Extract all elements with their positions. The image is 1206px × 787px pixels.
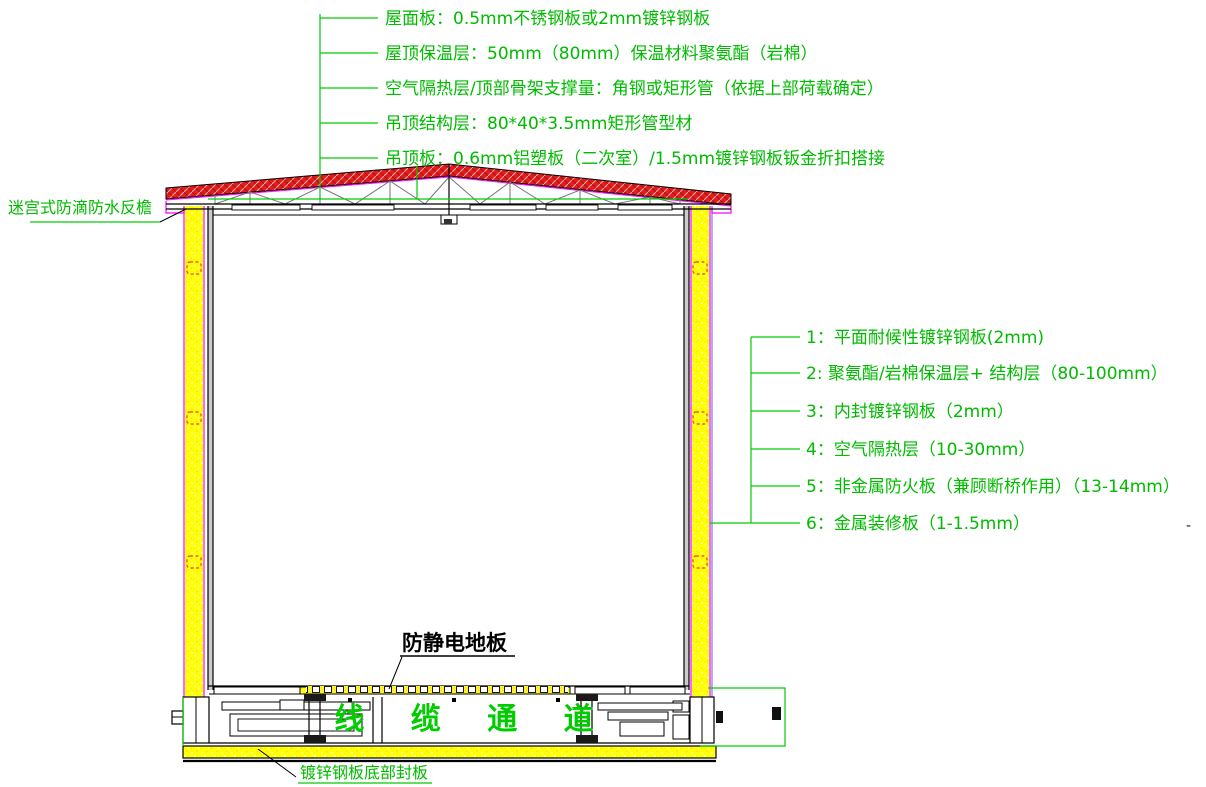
duct-plate-right (608, 712, 668, 720)
wall-annotation-1: 1：平面耐候性镀锌钢板(2mm) (806, 328, 1044, 348)
right-wall-insulation-panel (692, 206, 709, 705)
ceiling-panel (470, 205, 536, 210)
post-cap (304, 694, 326, 701)
wall-annotation-3: 3：内封镀锌钢板（2mm） (806, 402, 1014, 422)
wall-annotation-6: 6：金属装修板（1-1.5mm） (806, 514, 1030, 534)
ceiling-panel (312, 205, 394, 210)
bottom-sealing-slab (183, 746, 716, 758)
antistatic-floor-label: 防静电地板 (402, 631, 508, 655)
ceiling-panel (618, 205, 672, 210)
cad-section-drawing: 屋面板：0.5mm不锈钢板或2mm镀锌钢板 屋顶保温层：50mm（80mm）保温… (0, 0, 1206, 787)
ceiling-center-hanger-pad (444, 219, 452, 224)
wall-fastener-markers (187, 262, 707, 568)
left-wall-insulation-panel (185, 206, 203, 705)
roof-annotation-4: 吊顶结构层：80*40*3.5mm矩形管型材 (385, 114, 692, 134)
extent-box-mark (772, 707, 781, 720)
wall-annotation-bracket (710, 337, 800, 523)
roof-annotation-2: 屋顶保温层：50mm（80mm）保温材料聚氨酯（岩棉） (385, 44, 818, 64)
roof-annotation-1: 屋面板：0.5mm不锈钢板或2mm镀锌钢板 (385, 9, 710, 29)
cable-channel-label: 线 缆 通 道 (334, 702, 611, 737)
wall-annotation-4: 4：空气隔热层（10-30mm） (806, 440, 1035, 460)
roof-annotation-3: 空气隔热层/顶部骨架支撑量：角钢或矩形管（依据上部荷载确定） (385, 79, 884, 99)
post-cap (304, 735, 326, 743)
wall-annotation-2: 2: 聚氨酯/岩棉保温层+ 结构层（80-100mm） (806, 364, 1168, 384)
duct-connector-left (280, 700, 304, 710)
left-wall-liner-fill (208, 206, 213, 690)
right-wall-liner-fill (684, 206, 689, 690)
floor-plate-right-b (630, 687, 685, 694)
bottom-plate-label: 镀锌钢板底部封板 (300, 763, 428, 782)
right-bolt-head (716, 711, 723, 723)
left-eave-label: 迷宫式防滴防水反檐 (8, 198, 152, 217)
floor-pedestal-tabs (306, 686, 568, 693)
left-eave-leader-line (160, 209, 186, 222)
floor-plate-left (214, 687, 300, 694)
drawing-canvas: 屋面板：0.5mm不锈钢板或2mm镀锌钢板 屋顶保温层：50mm（80mm）保温… (0, 0, 1206, 787)
antistatic-floor-leader (389, 657, 402, 689)
duct-box-right (620, 722, 664, 736)
ceiling-panel (232, 205, 300, 210)
ceiling-panel (546, 205, 598, 210)
wall-annotation-5: 5：非金属防火板（兼顾断桥作用）（13-14mm） (806, 477, 1180, 497)
roof-insulation-hatch-left (166, 164, 449, 199)
post-cap (576, 694, 598, 701)
floor-plate-right-a (575, 687, 625, 694)
stray-dash-mark: - (1186, 518, 1191, 534)
right-cap-block-b (673, 715, 689, 739)
roof-annotation-5: 吊顶板：0.6mm铝塑板（二次室）/1.5mm镀锌钢板钣金折扣搭接 (385, 149, 885, 169)
